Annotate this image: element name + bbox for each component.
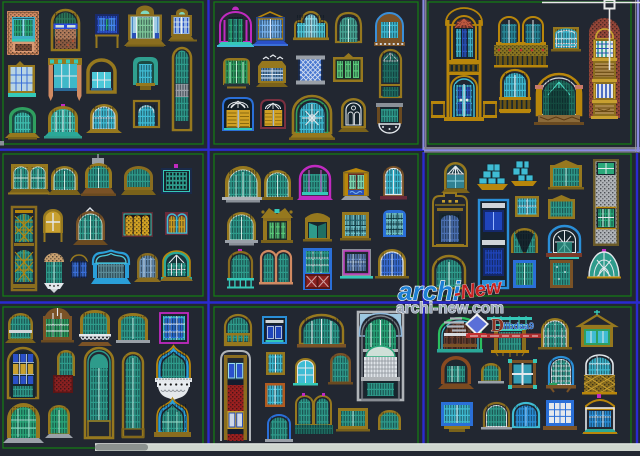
svg-text:archi-new.com: archi-new.com: [396, 300, 504, 317]
svg-text:llbdaa9: llbdaa9: [503, 321, 534, 331]
